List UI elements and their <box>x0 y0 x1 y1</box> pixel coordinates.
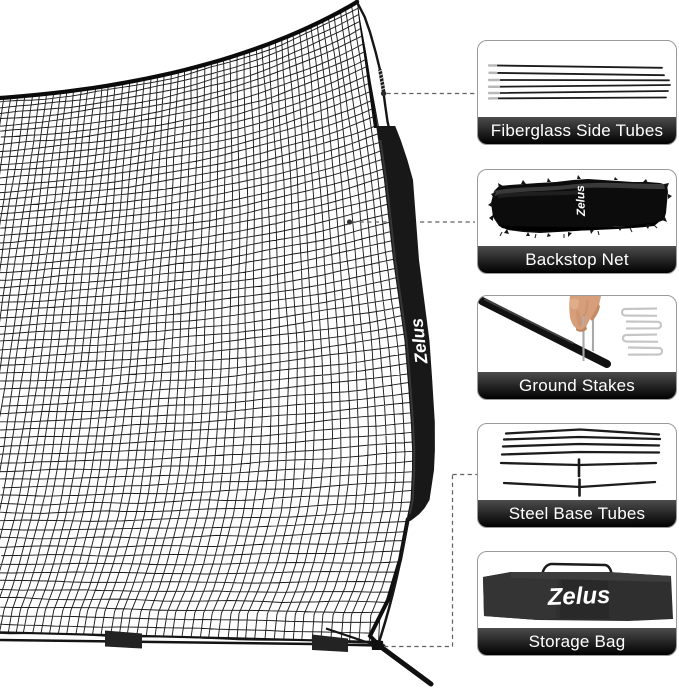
svg-text:Zelus: Zelus <box>546 582 611 611</box>
svg-text:Zelus: Zelus <box>573 185 588 218</box>
svg-text:Zelus: Zelus <box>406 317 431 366</box>
